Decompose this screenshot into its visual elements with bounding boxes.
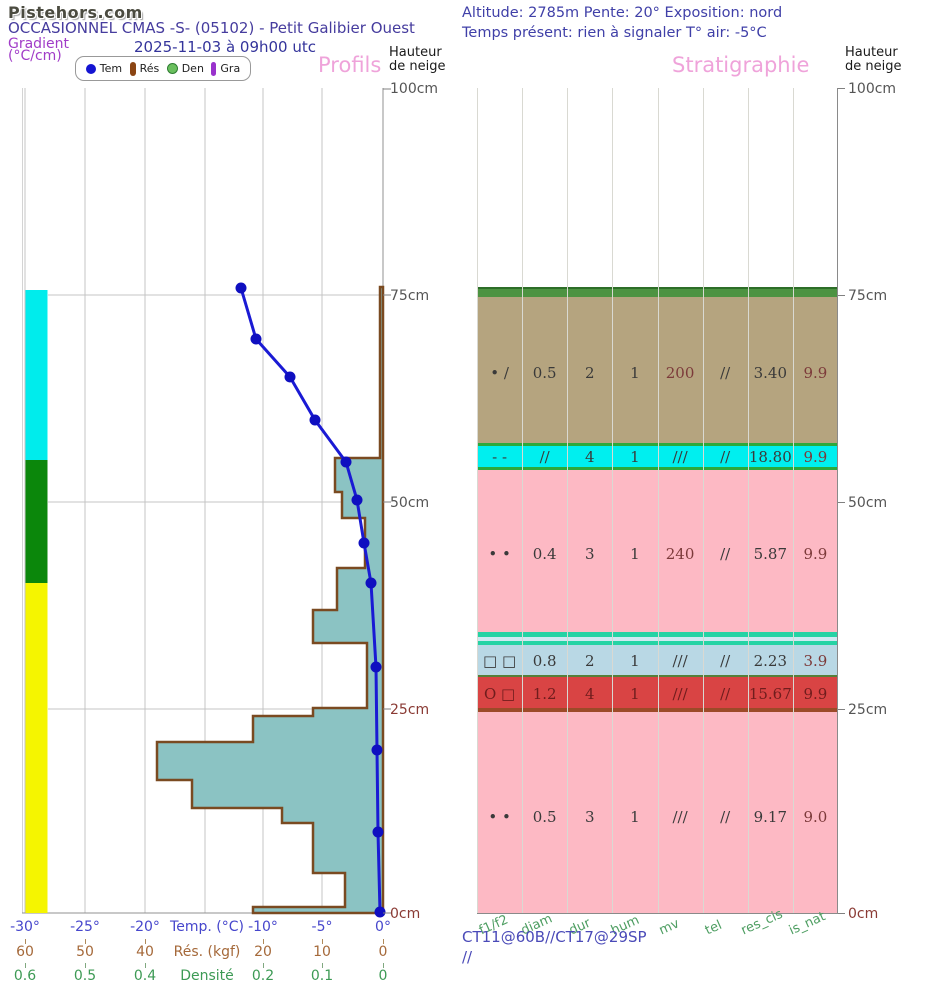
weather-line: Temps présent: rien à signaler T° air: -… (462, 25, 767, 41)
temp-axis-title: Temp. (°C) (170, 919, 244, 935)
resistance-bar-icon (130, 62, 136, 76)
stability-tests-line1: CT11@60B//CT17@29SP (462, 928, 647, 946)
page-title: OCCASIONNEL CMAS -S- (05102) - Petit Gal… (8, 19, 415, 37)
legend-density: Den (167, 62, 204, 75)
profils-heading: Profils (318, 53, 381, 77)
gradient-band-cyan (26, 290, 48, 460)
temperature-dot-icon (86, 64, 96, 74)
legend-resistance-label: Rés (140, 62, 160, 75)
stratigraphie-heading: Stratigraphie (672, 53, 809, 77)
strat-row-red: O □1.241/////15.679.9 (477, 681, 838, 707)
res-tick: 20 (254, 944, 272, 960)
density-circle-icon (167, 63, 178, 74)
right-height-axis-title: Hauteur de neige (845, 46, 901, 74)
right-ytick-50cm: 50cm (848, 495, 887, 511)
right-ytick-25cm: 25cm (848, 702, 887, 718)
horizontal-gridlines (48, 295, 383, 709)
grain-symbol: □ □ (477, 652, 522, 670)
res-tick: 10 (313, 944, 331, 960)
legend-grains: Gra (211, 62, 240, 76)
temp-tick: -20° (130, 919, 160, 935)
temp-tick: -10° (248, 919, 278, 935)
stability-tests-line2: // (462, 948, 472, 966)
res-axis-title: Rés. (kgf) (174, 944, 241, 960)
den-tick: 0.6 (14, 968, 36, 984)
gradient-colorbar (26, 290, 48, 913)
right-ytick-100cm: 100cm (848, 81, 896, 97)
altitude-line: Altitude: 2785m Pente: 20° Exposition: n… (462, 5, 782, 21)
left-ytick-0cm: 0cm (390, 906, 420, 922)
den-tick: 0 (379, 968, 388, 984)
temp-tick: -30° (10, 919, 40, 935)
right-ytick-75cm: 75cm (848, 288, 887, 304)
left-ytick-50cm: 50cm (390, 495, 429, 511)
strat-right-axis (837, 88, 838, 913)
left-height-axis-title: Hauteur de neige (389, 46, 445, 74)
profile-legend: Tem Rés Den Gra (75, 56, 251, 81)
res-tick: 60 (16, 944, 34, 960)
res-tick: 50 (76, 944, 94, 960)
grain-symbol: • / (477, 364, 522, 382)
grain-symbol: O □ (477, 685, 522, 703)
grain-symbol: - - (477, 448, 522, 466)
den-tick: 0.4 (134, 968, 156, 984)
right-ytick-0cm: 0cm (848, 906, 878, 922)
temp-tick: -25° (70, 919, 100, 935)
resistance-profile-shape (157, 287, 383, 913)
gradient-unit-label: (°C/cm) (8, 50, 62, 62)
den-tick: 0.5 (74, 968, 96, 984)
grains-bar-icon (211, 62, 216, 76)
grain-symbol: • • (477, 545, 522, 563)
res-tick: 40 (136, 944, 154, 960)
gradient-band-yellow (26, 583, 48, 913)
den-axis-title: Densité (180, 968, 234, 984)
res-tick: 0 (379, 944, 388, 960)
strat-row-tan: • /0.521200//3.409.9 (477, 360, 838, 386)
strat-col-mv: mv (657, 916, 682, 938)
strat-col-tel: tel (703, 918, 724, 939)
strat-row-cyan: - -//41/////18.809.9 (477, 444, 838, 470)
stratigraphy-panel: • /0.521200//3.409.9 - -//41/////18.809.… (477, 88, 838, 913)
grain-symbol: • • (477, 808, 522, 826)
profils-chart (22, 88, 394, 919)
left-ytick-100cm: 100cm (390, 81, 438, 97)
temp-tick: -5° (312, 919, 333, 935)
den-tick: 0.2 (252, 968, 274, 984)
strat-row-lightblue: □ □0.821/////2.233.9 (477, 648, 838, 674)
snow-profile-page: Pistehors.com OCCASIONNEL CMAS -S- (0510… (0, 0, 927, 1000)
den-tick: 0.1 (311, 968, 333, 984)
strat-bottom-axis (477, 913, 838, 914)
observation-datetime: 2025-11-03 à 09h00 utc (105, 38, 345, 56)
left-ytick-75cm: 75cm (390, 288, 429, 304)
legend-resistance: Rés (130, 62, 160, 76)
gradient-band-green (26, 460, 48, 583)
legend-temperature-label: Tem (100, 62, 122, 75)
strat-row-pink-lower: • •0.531/////9.179.0 (477, 804, 838, 830)
legend-grains-label: Gra (220, 62, 240, 75)
strat-row-pink-upper: • •0.431240//5.879.9 (477, 541, 838, 567)
left-ytick-25cm: 25cm (390, 702, 429, 718)
temp-tick: 0° (375, 919, 391, 935)
legend-temperature: Tem (86, 62, 122, 75)
legend-density-label: Den (182, 62, 204, 75)
